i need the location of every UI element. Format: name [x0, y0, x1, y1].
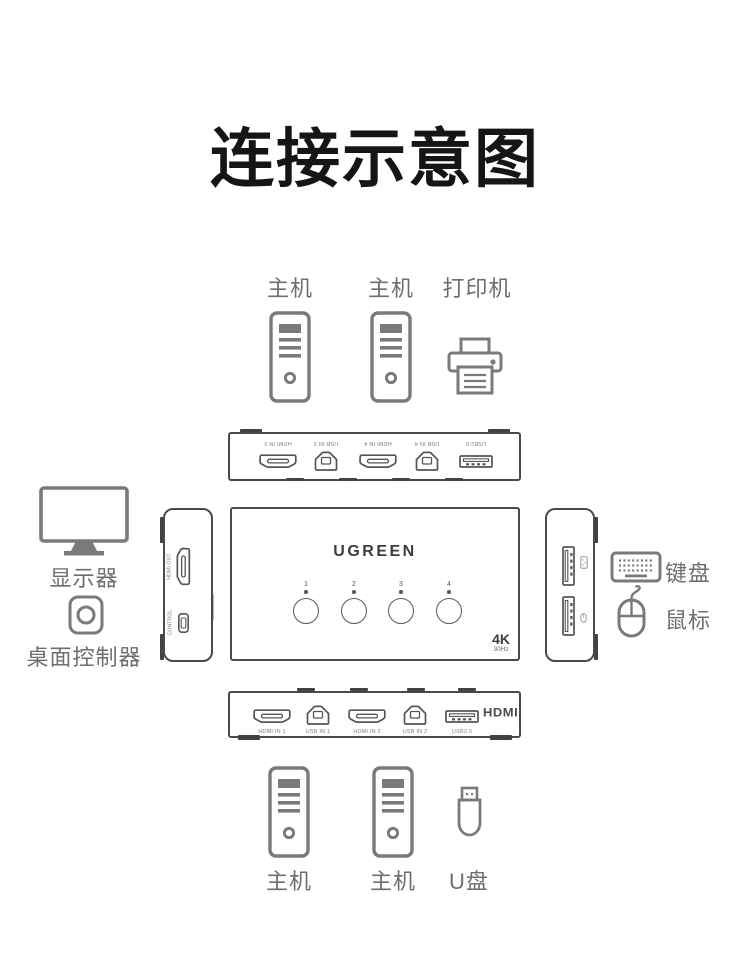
port-label: USB IN 4	[407, 440, 447, 446]
monitor-label: 显示器	[18, 561, 150, 593]
usb-a-port-icon	[458, 454, 494, 474]
mouse-mini-icon	[580, 610, 587, 628]
control-label: CONTROL	[168, 603, 175, 643]
computer-tower-icon	[370, 311, 412, 408]
hdmi-logo: HDMI	[483, 706, 518, 720]
printer-icon	[445, 337, 505, 400]
usb-drive-label: U盘	[419, 864, 519, 896]
kvm-rear-panel: HDMI IN 3 USB IN 3 HDMI IN 4 USB IN 4 US…	[228, 432, 521, 481]
usb-b-port-icon	[305, 704, 331, 731]
channel-number: 4	[434, 581, 464, 588]
channel-number: 3	[386, 581, 416, 588]
port-label: USB IN 3	[306, 440, 346, 446]
computer-tower-icon	[268, 766, 310, 863]
channel-led	[304, 590, 308, 594]
monitor-icon	[39, 486, 129, 563]
port-label: USB IN 2	[395, 729, 435, 735]
computer1-label: 主机	[240, 271, 340, 303]
page-title: 连接示意图	[0, 108, 750, 200]
usb-a-port-icon	[444, 709, 480, 729]
kvm-switch-front: UGREEN 1 2 3 4 4K 30Hz	[230, 507, 520, 661]
front-panel-foot	[238, 735, 260, 740]
channel-button-3: 3	[386, 581, 416, 624]
brand-logo: UGREEN	[232, 543, 518, 561]
hdmi-port-icon	[252, 708, 292, 730]
channel-button-2: 2	[339, 581, 369, 624]
port-label: HDMI IN 4	[358, 440, 398, 446]
computer2-label: 主机	[341, 271, 441, 303]
kvm-front-panel: HDMI HDMI IN 1 USB IN 1 HDMI IN 2 USB IN…	[228, 691, 521, 738]
usb-b-port-icon	[402, 704, 428, 731]
mouse-label: 鼠标	[648, 603, 728, 635]
controller-label: 桌面控制器	[18, 640, 150, 672]
front-panel-foot	[490, 735, 512, 740]
rear-panel-vent	[392, 478, 410, 481]
port-label: USB2.0	[442, 729, 482, 735]
rear-panel-vent	[286, 478, 304, 481]
channel-led	[399, 590, 403, 594]
badge-30hz: 30Hz	[492, 646, 510, 653]
hdmi-out-port-icon	[175, 547, 192, 587]
usb-b-port-icon	[414, 450, 440, 477]
badge-4k: 4K	[492, 633, 510, 646]
channel-number: 2	[339, 581, 369, 588]
port-label: HDMI IN 3	[258, 440, 298, 446]
channel-led	[352, 590, 356, 594]
hdmi-port-icon	[358, 453, 398, 475]
hdmi-out-label: HDMI OUT	[167, 547, 174, 587]
keyboard-label: 键盘	[648, 556, 728, 588]
port-label: HDMI IN 2	[347, 729, 387, 735]
printer-label: 打印机	[427, 271, 527, 303]
port-label: USB2.0	[456, 440, 496, 446]
computer3-label: 主机	[239, 864, 339, 896]
usb-a-port-icon	[561, 545, 576, 592]
resolution-badge: 4K 30Hz	[492, 633, 510, 653]
channel-button-circle	[293, 598, 319, 624]
usb-drive-icon	[452, 786, 486, 843]
channel-button-4: 4	[434, 581, 464, 624]
channel-number: 1	[291, 581, 321, 588]
keyboard-mini-icon	[580, 556, 588, 574]
channel-button-1: 1	[291, 581, 321, 624]
hdmi-port-icon	[347, 708, 387, 730]
channel-led	[447, 590, 451, 594]
channel-button-circle	[341, 598, 367, 624]
computer-tower-icon	[372, 766, 414, 863]
channel-button-circle	[436, 598, 462, 624]
channel-button-circle	[388, 598, 414, 624]
desktop-controller-icon	[68, 595, 104, 640]
usb-b-port-icon	[313, 450, 339, 477]
hdmi-port-icon	[258, 453, 298, 475]
mouse-icon	[613, 584, 651, 643]
rear-panel-vent	[445, 478, 463, 481]
connection-diagram-page: 连接示意图 主机 主机 打印机 HDMI IN 3 USB IN 3 HDMI …	[0, 0, 750, 954]
control-port-icon	[177, 612, 190, 639]
computer-tower-icon	[269, 311, 311, 408]
port-label: USB IN 1	[298, 729, 338, 735]
rear-panel-vent	[339, 478, 357, 481]
usb-a-port-icon	[561, 595, 576, 642]
